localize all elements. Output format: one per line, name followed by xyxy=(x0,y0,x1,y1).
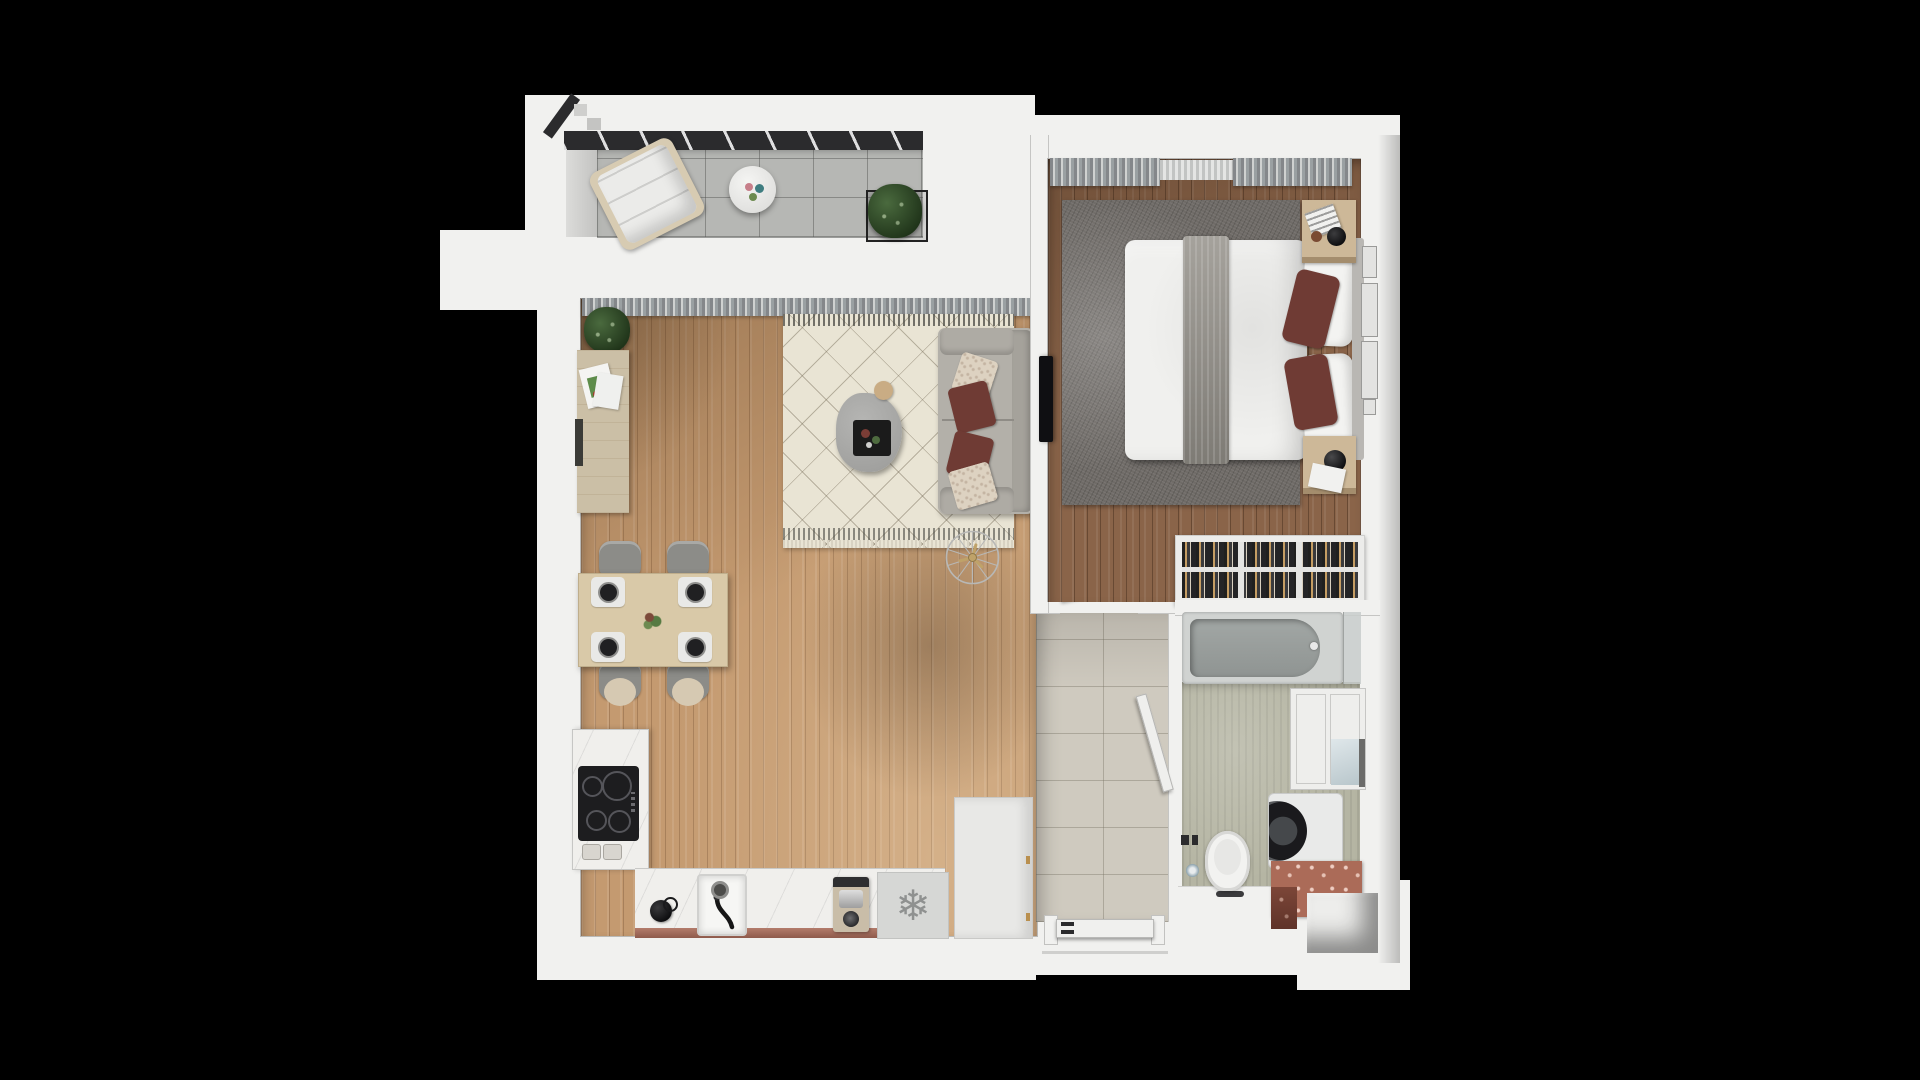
flush-plate xyxy=(1181,835,1189,845)
toilet-paper-roll xyxy=(1186,864,1199,877)
bathroom-wall-cabinet xyxy=(1290,688,1366,790)
entry-door-handle xyxy=(1061,922,1074,926)
nightstand-south xyxy=(1303,436,1356,494)
burner xyxy=(608,810,631,833)
balcony-wall-face xyxy=(566,148,598,237)
toilet-ledge-slot xyxy=(1216,891,1244,897)
kitchen-sink xyxy=(697,874,747,936)
cup-pink xyxy=(745,183,753,191)
sink-drain xyxy=(711,881,729,899)
cabinet-glass-door xyxy=(1331,739,1361,785)
cabinet-open-gap xyxy=(1359,739,1365,787)
machine-top xyxy=(833,877,869,887)
washer-drum xyxy=(1268,801,1307,861)
poster-print-b xyxy=(593,372,624,410)
cooktop xyxy=(578,766,639,841)
espresso-machine xyxy=(833,877,869,932)
oven-knob xyxy=(603,844,622,860)
balcony-step-b xyxy=(587,118,601,130)
cabinet-hinge xyxy=(1026,913,1030,921)
recessed-lightwell xyxy=(1307,893,1378,953)
shower-glass-panel xyxy=(1343,612,1361,684)
side-stool xyxy=(874,381,893,400)
cup-green xyxy=(749,193,757,201)
bedroom-curtain-left xyxy=(1050,158,1160,186)
cabinet-panel xyxy=(1296,694,1326,784)
entry-door xyxy=(1056,919,1154,938)
tray-flower-white xyxy=(866,442,872,448)
coffee-table xyxy=(836,393,902,472)
sideboard xyxy=(577,350,629,513)
block-left-extension xyxy=(440,230,537,310)
kettle-handle xyxy=(663,897,678,912)
sofa xyxy=(938,328,1034,514)
toilet xyxy=(1205,831,1250,891)
entry-step-line xyxy=(1042,951,1168,954)
balcony-plant xyxy=(868,184,922,238)
nightstand-vase xyxy=(1327,227,1346,246)
toilet-bowl xyxy=(1214,839,1241,875)
machine-chrome xyxy=(839,890,863,908)
ceiling-fan xyxy=(944,529,1001,586)
kettle xyxy=(650,900,672,922)
bathtub-faucet xyxy=(1310,642,1318,650)
chair-cushion xyxy=(672,678,704,706)
place-setting xyxy=(591,577,625,607)
dining-table xyxy=(578,573,728,667)
leaning-art-frame xyxy=(1363,399,1376,415)
place-setting xyxy=(678,577,712,607)
place-setting xyxy=(678,632,712,662)
chair-cushion xyxy=(604,678,636,706)
right-wall-shade xyxy=(1378,135,1400,963)
leaning-art-frame xyxy=(1361,341,1378,399)
leaning-books xyxy=(575,419,583,466)
oven-knob xyxy=(582,844,601,860)
balcony-round-table xyxy=(729,166,776,213)
leaning-art-frame xyxy=(1362,246,1377,278)
nightstand-north xyxy=(1302,200,1356,263)
table-centerpiece xyxy=(639,607,665,633)
freezer-compartment: ❄ xyxy=(877,872,949,939)
leaning-art-frame xyxy=(1361,283,1378,337)
bedroom-curtain-right xyxy=(1233,158,1352,186)
living-room-plant xyxy=(584,307,630,353)
washing-machine xyxy=(1268,793,1343,869)
sofa-back xyxy=(1012,330,1032,512)
wardrobe-mullion xyxy=(1238,542,1244,598)
freezer-snowflake-icon: ❄ xyxy=(895,885,930,927)
cooktop-controls xyxy=(631,792,635,812)
built-in-wardrobe xyxy=(1175,535,1365,605)
hallway-floor xyxy=(1036,613,1170,922)
wardrobe-shelf xyxy=(1182,567,1358,572)
burner xyxy=(582,776,603,797)
hall-bathroom-wall xyxy=(1168,608,1183,922)
place-setting xyxy=(591,632,625,662)
bathtub xyxy=(1182,612,1343,684)
balcony-step-a xyxy=(574,104,587,116)
cabinet-hinge xyxy=(1026,856,1030,864)
bathtub-basin xyxy=(1190,619,1320,677)
double-bed xyxy=(1123,236,1364,464)
sofa-armrest-top xyxy=(940,328,1014,355)
entry-door-handle xyxy=(1061,930,1074,934)
bedroom-sheer-curtain xyxy=(1160,160,1233,180)
balcony-glass-balustrade xyxy=(564,131,923,150)
bedroom-tv xyxy=(1039,356,1053,442)
machine-portafilter xyxy=(843,911,859,927)
wardrobe-mullion xyxy=(1296,542,1302,598)
tray-flower-red xyxy=(861,429,870,438)
flush-plate xyxy=(1192,835,1198,845)
burner xyxy=(602,771,632,801)
bed-runner-blanket xyxy=(1183,236,1229,464)
rug-border-top xyxy=(783,314,1014,326)
nightstand-candle xyxy=(1311,231,1322,242)
tray-flower-green xyxy=(872,436,880,444)
coffee-table-tray xyxy=(853,420,891,456)
cup-teal xyxy=(755,184,764,193)
burner xyxy=(586,810,607,831)
floor-plan-canvas: ❄ xyxy=(0,0,1920,1080)
entry-tall-cabinet xyxy=(954,797,1033,939)
terracotta-counter-front xyxy=(1271,887,1297,929)
